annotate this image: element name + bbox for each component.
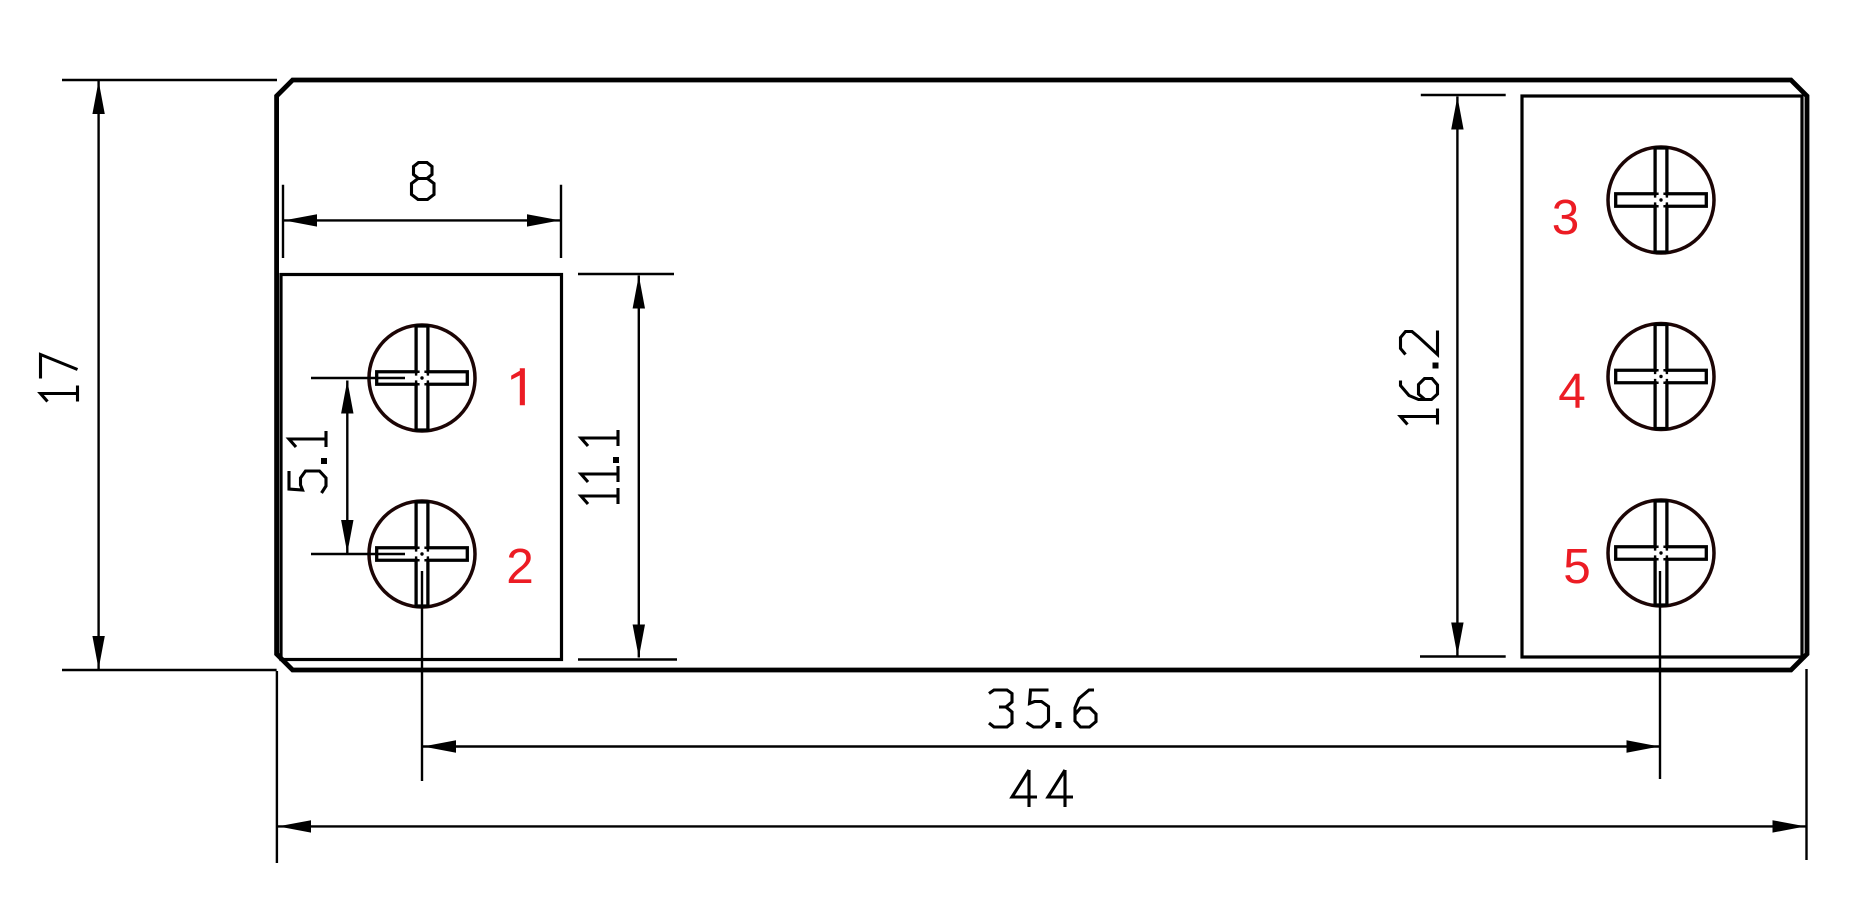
svg-text:5: 5	[1563, 539, 1591, 594]
svg-text:3: 3	[1552, 190, 1580, 245]
svg-text:4: 4	[1558, 364, 1586, 419]
svg-text:2: 2	[506, 539, 534, 594]
